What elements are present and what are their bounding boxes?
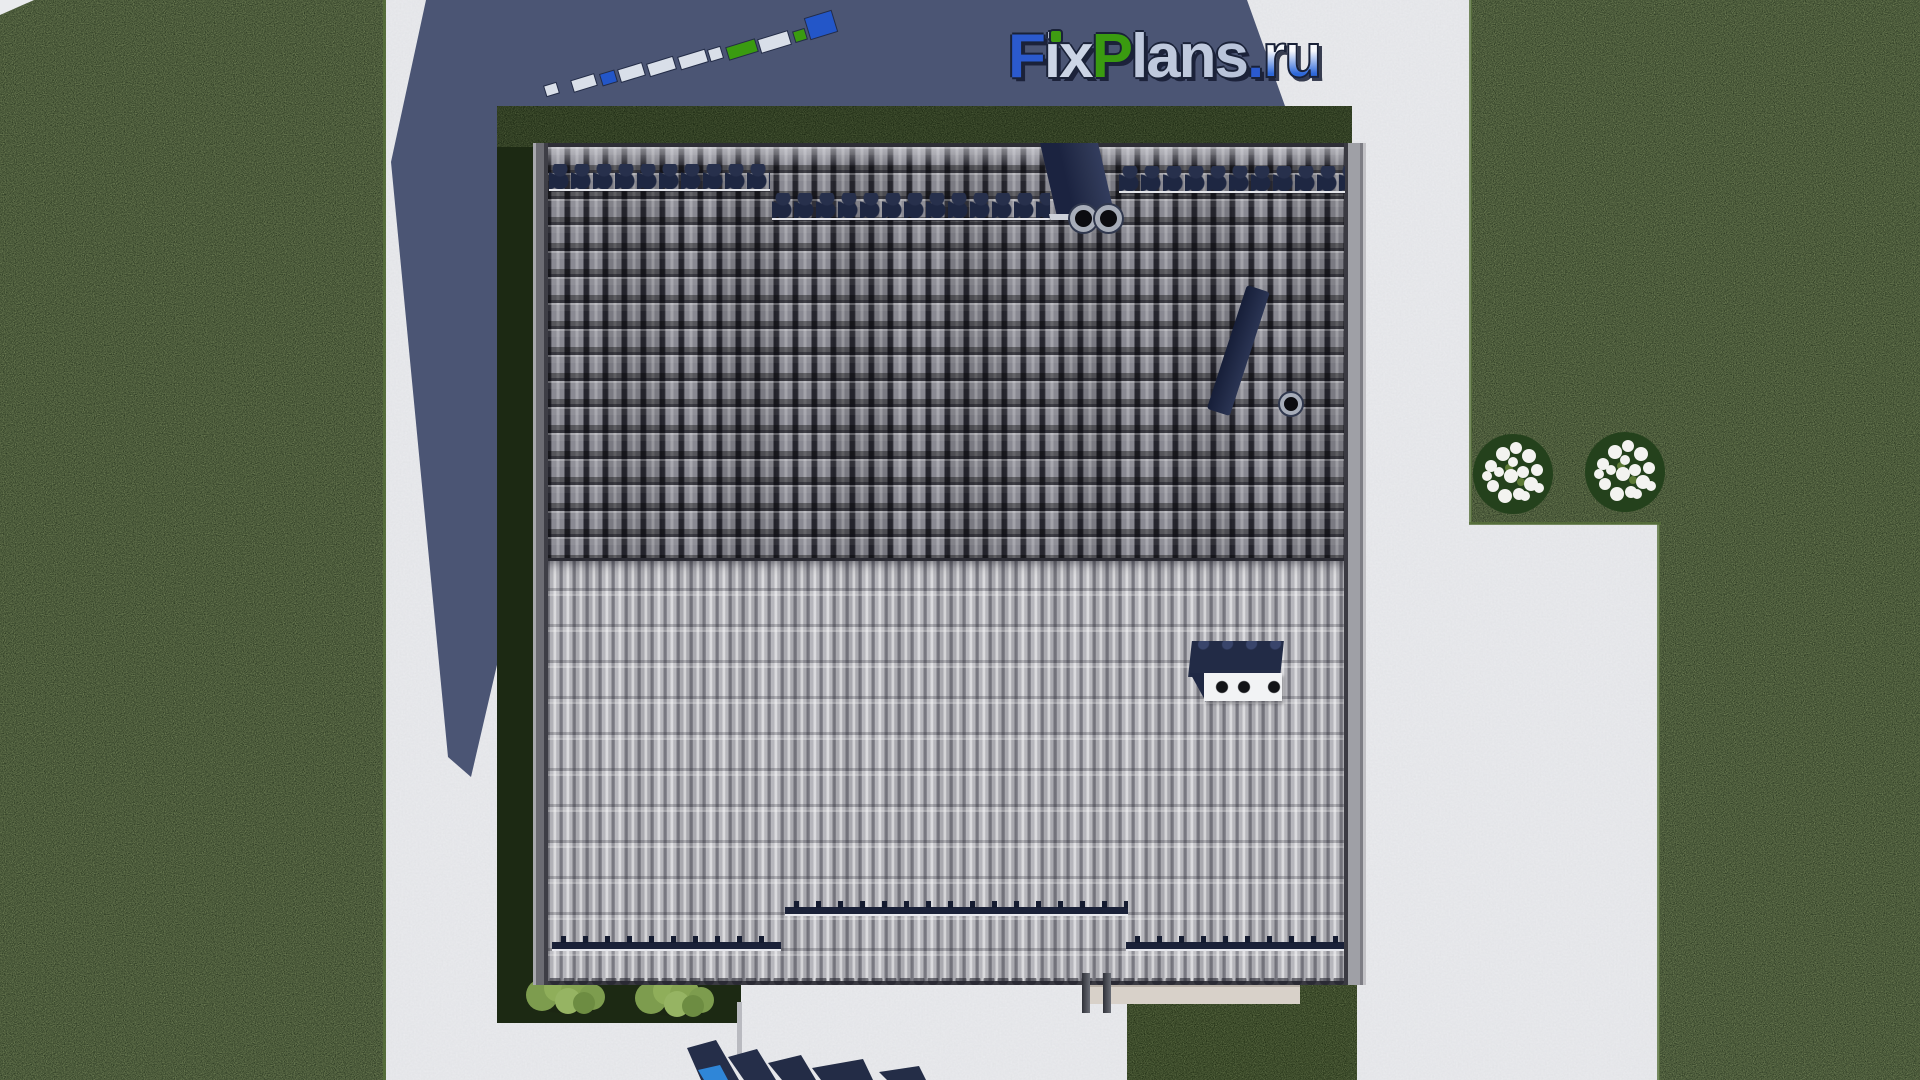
roof-vent-face: [1204, 673, 1282, 701]
ridge-ornament-row-center: [772, 193, 1050, 220]
snow-guard-rail-right: [1126, 936, 1344, 951]
logo-letter-n: n: [1179, 22, 1215, 91]
flue-pipe-2: [1095, 205, 1122, 232]
roof-vent-hood: [1188, 641, 1284, 677]
gutter-downspout-2: [1103, 973, 1111, 1013]
roof-edge-trim-left: [533, 143, 548, 985]
snow-guard-rail-center: [785, 901, 1128, 916]
roof-plan-render: FixPlans.ru: [0, 0, 1920, 1080]
logo-letter-u: u: [1284, 22, 1320, 91]
flue-pipe-3: [1280, 393, 1302, 415]
logo-letter-l: l: [1131, 22, 1146, 91]
roof-lower-slope: [548, 558, 1344, 985]
roof-edge-trim-right: [1344, 143, 1366, 985]
terrace-step: [1085, 985, 1300, 1004]
snow-guard-rail-left: [552, 936, 781, 951]
logo-letter-a: a: [1146, 22, 1178, 91]
flower-bush-2: [1585, 432, 1665, 512]
logo-letter-x: x: [1059, 22, 1091, 91]
logo-i-dot: [1051, 31, 1061, 42]
lawn-lit-edge: [383, 0, 386, 1080]
path-edge-line: [737, 1002, 742, 1058]
brand-logo: FixPlans.ru: [1008, 26, 1320, 88]
logo-letter-s: s: [1215, 22, 1247, 91]
house-roof: [533, 143, 1366, 985]
logo-letter-f: F: [1008, 22, 1044, 91]
logo-letter-p: P: [1092, 22, 1131, 91]
ridge-ornament-row-right: [1119, 166, 1345, 193]
logo-letter-r: r: [1262, 22, 1284, 91]
flower-bush-1: [1473, 434, 1553, 514]
gutter-downspout-1: [1082, 973, 1090, 1013]
flue-pipe-1: [1070, 205, 1097, 232]
ridge-ornament-row-left: [549, 164, 770, 191]
logo-dot: .: [1247, 22, 1262, 91]
left-lawn: [0, 0, 386, 1080]
